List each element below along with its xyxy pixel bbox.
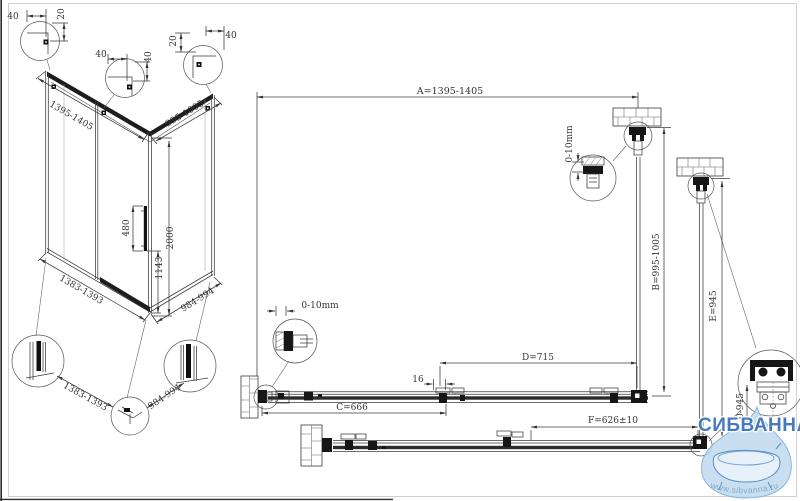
- handle-length-label: 480: [122, 219, 132, 236]
- dim-a-label: A=1395-1405: [416, 86, 483, 97]
- bottom-depth-label: 984-994: [179, 286, 216, 314]
- dim-e-label: E=945: [709, 290, 719, 322]
- gap-label: 16: [412, 375, 424, 385]
- detail3-h-label: 40: [225, 31, 237, 41]
- upper-rail-section: [254, 385, 648, 409]
- drawing-page: 40 20 40 40 20 40 1395-1405 995-1005 480…: [0, 0, 800, 501]
- brick-wall-icons: [241, 108, 723, 466]
- wall-adjust-left-label: 0-10mm: [301, 301, 339, 311]
- plan-view: A=1395-1405 0-10mm B=995-1005 E=945 0-10…: [241, 86, 800, 466]
- handle-height-label: 1143: [155, 256, 165, 279]
- profile-depth-label: 984-994: [147, 383, 184, 412]
- detail1-h-label: 40: [7, 12, 19, 22]
- dim-b-label: B=995-1005: [652, 233, 662, 291]
- dim-d-label: D=715: [522, 353, 554, 363]
- top-width-label: 1395-1405: [47, 100, 95, 133]
- wall-adjust-detail-left: [267, 306, 317, 387]
- watermark: СИБВАННА www.sibvanna.ru: [698, 407, 800, 498]
- wall-adjust-top-label: 0-10mm: [565, 125, 575, 163]
- profile-detail-circles: [12, 258, 216, 435]
- wall-adjust-detail-top: [570, 153, 616, 201]
- iso-labels: 40 20 40 40 20 40 1395-1405 995-1005 480…: [7, 8, 237, 414]
- detail1-v-label: 20: [57, 8, 67, 20]
- profile-width-label: 1383-1393: [61, 381, 109, 414]
- plan-labels: A=1395-1405 0-10mm B=995-1005 E=945 0-10…: [301, 86, 746, 426]
- corner-roller-detail: [738, 350, 800, 425]
- dim-f-label: F=626±10: [588, 416, 638, 426]
- lower-rail-section: [322, 410, 741, 456]
- dim-c-label: C=666: [336, 403, 368, 413]
- technical-drawing: 40 20 40 40 20 40 1395-1405 995-1005 480…: [0, 0, 800, 501]
- height-label: 2000: [166, 226, 176, 249]
- corner-detail-circles: [21, 22, 223, 109]
- detail2-v-label: 40: [144, 51, 154, 63]
- top-depth-label: 995-1005: [164, 99, 206, 130]
- detail3-v-label: 20: [169, 35, 179, 47]
- detail2-h-label: 40: [95, 50, 107, 60]
- page-frame: [0, 0, 797, 501]
- isometric-view: 40 20 40 40 20 40 1395-1405 995-1005 480…: [7, 8, 237, 435]
- watermark-brand: СИБВАННА: [698, 415, 800, 436]
